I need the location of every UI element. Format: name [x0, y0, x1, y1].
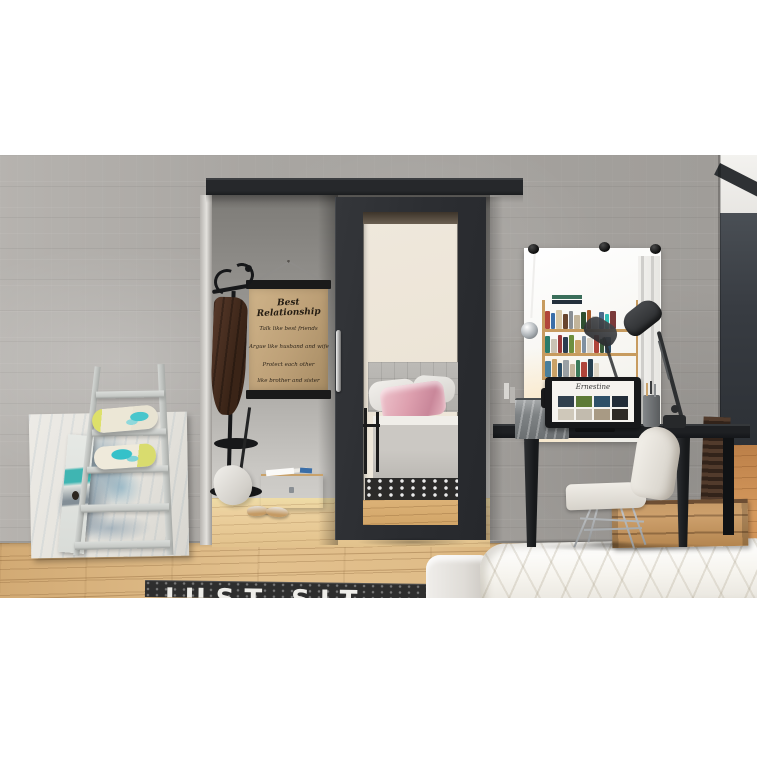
desk-lamp-joint — [671, 405, 679, 413]
ladder-shelf-board — [96, 390, 164, 398]
mirror-clip-light — [528, 244, 539, 254]
mirror-clip-light — [599, 242, 610, 252]
desk-lamp-base — [663, 415, 686, 428]
mirror-bed-reflection — [373, 416, 458, 478]
door-wall-shadow — [485, 197, 503, 540]
mirror-bedframe-bar — [376, 412, 379, 472]
laptop-thumbnail-row — [558, 409, 628, 420]
laptop-screen: Ernestine — [552, 381, 634, 422]
door-mirror — [363, 212, 458, 525]
coat-rack-tray — [214, 438, 258, 449]
laptop-stand — [575, 428, 615, 432]
chest-latch — [289, 487, 294, 493]
wall-sconce — [521, 322, 538, 339]
ladder-shelf-board — [81, 503, 169, 513]
canvas-paint-dot — [72, 491, 79, 500]
product-photo-page: { "poster": { "title": "Best Relationshi… — [0, 0, 757, 757]
mirror-clip-light — [650, 244, 661, 254]
mirror-bedframe-bar — [364, 408, 367, 474]
adjacent-dark-wall — [720, 213, 757, 450]
poster-title: Best Relationship — [249, 297, 329, 320]
door-handle — [336, 330, 341, 392]
poster-line: Argue like husband and wife — [249, 344, 328, 350]
glass-bottles — [504, 383, 509, 399]
mirror-floor-reflection — [363, 500, 458, 525]
bookshelf-row — [545, 353, 636, 380]
laptop-thumbnail-row — [558, 396, 628, 407]
pencils — [646, 383, 648, 396]
rug-text: JUST SIT — [165, 583, 368, 598]
ladder-shelf-board — [75, 540, 170, 550]
interior-scene-photo: Best Relationship Talk like best friends… — [0, 155, 757, 598]
door-floor-shadow — [338, 536, 488, 548]
coat-hook-ball — [245, 265, 252, 272]
sliding-door-rail — [206, 178, 523, 195]
desk-leg — [723, 438, 734, 535]
blue-book-on-chest — [300, 468, 312, 474]
motivational-poster: Best Relationship Talk like best friends… — [249, 289, 328, 390]
mirror-reflection-books-stack — [552, 295, 582, 299]
poster-bottom-bar — [246, 390, 331, 399]
chair-floor-shadow — [566, 539, 652, 549]
poster-line: Talk like best friends — [249, 326, 328, 332]
doormat-rug: JUST SIT — [145, 580, 435, 598]
bookshelf-side-rail — [542, 300, 545, 380]
mirror-bedframe-bar — [363, 424, 380, 427]
pencil-cup — [643, 395, 660, 427]
poster-top-bar — [246, 280, 331, 289]
laptop-logo: Ernestine — [552, 383, 634, 391]
mirror-rug-reflection — [365, 478, 458, 501]
laptop: Ernestine — [545, 377, 641, 428]
poster-line: Protect each other — [249, 362, 328, 368]
pillow-leaf-print — [93, 443, 156, 470]
poster-line: like brother and sister — [249, 378, 328, 384]
mirror-rail-reflection — [363, 212, 458, 224]
